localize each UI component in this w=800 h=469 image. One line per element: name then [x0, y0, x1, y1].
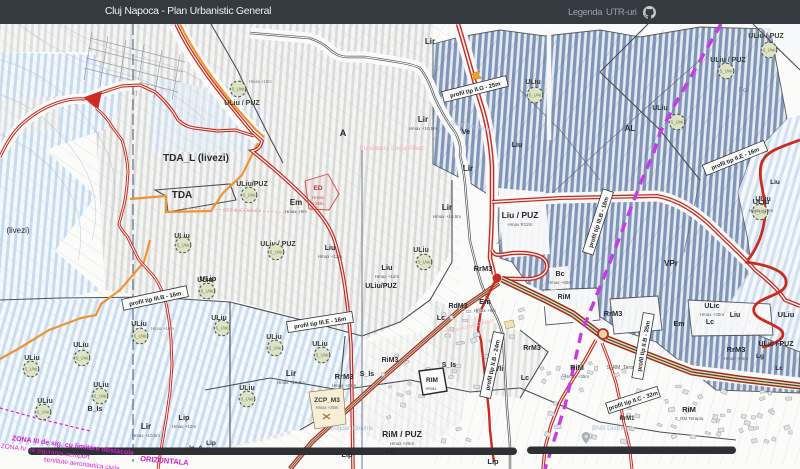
svg-text:S_UVe: S_UVe: [75, 356, 89, 361]
svg-text:RrM3: RrM3: [523, 345, 541, 352]
svg-text:ULiu: ULiu: [652, 105, 668, 112]
svg-text:S_UVe: S_UVe: [36, 410, 50, 415]
svg-text:Bc: Bc: [556, 271, 565, 278]
svg-text:B_Is: B_Is: [88, 406, 103, 413]
svg-text:RrM1: RrM1: [619, 416, 635, 422]
svg-text:ULiu: ULiu: [753, 197, 770, 206]
svg-text:TDA_L (livezi): TDA_L (livezi): [163, 153, 229, 164]
svg-text:Lir: Lir: [141, 422, 151, 431]
svg-text:S_UVe: S_UVe: [762, 48, 776, 53]
svg-text:ULiu/PUZ: ULiu/PUZ: [365, 283, 397, 290]
svg-text:S_UVe: S_UVe: [268, 346, 282, 351]
svg-text:ULiu: ULiu: [131, 321, 147, 328]
svg-text:RIM: RIM: [426, 377, 438, 384]
svg-text:S_UVe: S_UVe: [176, 243, 190, 248]
svg-text:Hmax R12m: Hmax R12m: [507, 222, 532, 227]
svg-text:Hmax +25m: Hmax +25m: [700, 312, 725, 317]
svg-text:Hmax +25m: Hmax +25m: [390, 441, 415, 446]
svg-text:S_UVe: S_UVe: [242, 193, 256, 198]
svg-text:RiM / PUZ: RiM / PUZ: [382, 429, 422, 439]
svg-text:S_UVe: S_UVe: [231, 87, 245, 92]
svg-text:Lip: Lip: [178, 413, 190, 422]
svg-text:RrM3: RrM3: [727, 345, 746, 354]
svg-text:+25m: +25m: [312, 201, 324, 206]
svg-text:S_UVe: S_UVe: [528, 93, 542, 98]
svg-text:ULiu: ULiu: [778, 310, 795, 319]
svg-text:RiM: RiM: [570, 363, 584, 372]
svg-text:ZCP_M3: ZCP_M3: [314, 397, 340, 404]
svg-text:Hmax +12m: Hmax +12m: [375, 274, 400, 279]
svg-text:Hmax +25m: Hmax +25m: [565, 374, 590, 379]
svg-text:ULiu / PUZ: ULiu / PUZ: [224, 100, 260, 107]
svg-text:Hmax +10,5m: Hmax +10,5m: [433, 214, 461, 219]
svg-text:S_UVe: S_UVe: [93, 394, 107, 399]
svg-text:S_UVe: S_UVe: [719, 69, 733, 74]
svg-text:Lg: Lg: [756, 353, 764, 360]
svg-text:Lir: Lir: [425, 37, 435, 46]
svg-text:Hmax +25m: Hmax +25m: [332, 383, 357, 388]
svg-text:Lir: Lir: [418, 115, 428, 124]
svg-text:Em: Em: [290, 198, 302, 207]
svg-text:A: A: [340, 128, 347, 138]
svg-text:Hmax +25m: Hmax +25m: [316, 405, 339, 410]
svg-text:Hmax +10m: Hmax +10m: [749, 208, 774, 213]
svg-text:Hmax +12m: Hmax +12m: [172, 424, 197, 429]
svg-text:ULiu: ULiu: [73, 342, 89, 349]
svg-text:S_UVe: S_UVe: [215, 326, 229, 331]
svg-text:ED: ED: [313, 185, 322, 192]
svg-text:S_Is: S_Is: [442, 362, 457, 369]
svg-text:Is_A: Is_A: [189, 445, 203, 452]
svg-text:RiM3: RiM3: [382, 357, 399, 364]
svg-text:ULiu: ULiu: [413, 247, 429, 254]
svg-text:Liu: Liu: [730, 312, 741, 319]
svg-text:TDA: TDA: [172, 190, 193, 201]
svg-text:ULiu: ULiu: [525, 79, 541, 86]
svg-text:Lip: Lip: [487, 457, 499, 466]
svg-text:Hmax: Hmax: [426, 386, 438, 391]
svg-text:ULiu: ULiu: [266, 334, 282, 341]
svg-text:Hmax +10,5m: Hmax +10,5m: [132, 433, 160, 438]
svg-text:Liu / PUZ: Liu / PUZ: [502, 210, 539, 220]
svg-text:Lip: Lip: [386, 449, 395, 455]
svg-text:S_UVe: S_UVe: [200, 289, 214, 294]
svg-text:Liu: Liu: [325, 245, 336, 252]
svg-text:Lip: Lip: [206, 440, 216, 447]
svg-text:Hmax +65m: Hmax +65m: [548, 280, 573, 285]
svg-text:Lir: Lir: [286, 369, 296, 378]
svg-text:S_UVe: S_UVe: [670, 120, 684, 125]
svg-text:ULiu / PUZ: ULiu / PUZ: [748, 33, 784, 40]
svg-text:Hmax +10m: Hmax +10m: [249, 79, 272, 84]
svg-text:Ve: Ve: [462, 129, 470, 136]
svg-text:ULiu: ULiu: [239, 385, 255, 392]
svg-text:RrM3: RrM3: [335, 372, 354, 381]
svg-text:ULiu / PUZ: ULiu / PUZ: [710, 57, 746, 64]
svg-text:RiM: RiM: [558, 294, 571, 301]
svg-text:RrM3: RrM3: [474, 264, 493, 273]
svg-text:VPr: VPr: [664, 259, 678, 268]
svg-text:Hmax +10,5m: Hmax +10,5m: [409, 126, 437, 131]
svg-text:S_UVe: S_UVe: [315, 353, 329, 358]
svg-text:RdM3: RdM3: [448, 303, 467, 310]
svg-text:Hmax +9m: Hmax +9m: [474, 308, 496, 313]
svg-text:Lip: Lip: [341, 450, 353, 459]
svg-text:S_UVe: S_UVe: [417, 260, 431, 265]
svg-text:S_UVe: S_UVe: [133, 334, 147, 339]
svg-text:S_Is: S_Is: [360, 371, 375, 378]
svg-text:Bogdan Dimitrie: Bogdan Dimitrie: [331, 426, 374, 432]
svg-text:Fcc: Fcc: [739, 87, 750, 94]
svg-text:(livezi): (livezi): [6, 226, 29, 235]
svg-text:S_RM Terapia: S_RM Terapia: [675, 416, 704, 421]
svg-text:Liu: Liu: [381, 263, 393, 272]
svg-text:Hmax +12m: Hmax +12m: [318, 254, 343, 259]
svg-text:Hmax +10,5m: Hmax +10,5m: [277, 380, 305, 385]
svg-text:Liu: Liu: [512, 142, 523, 149]
svg-text:BNB Districtul: BNB Districtul: [592, 425, 633, 432]
svg-text:S_UVe: S_UVe: [24, 367, 38, 372]
svg-text:Lc: Lc: [521, 375, 529, 382]
svg-text:ULiu/PUZ: ULiu/PUZ: [236, 181, 268, 188]
svg-text:Lir: Lir: [442, 203, 452, 212]
svg-text:ZCP As2 Oasului: ZCP As2 Oasului: [223, 208, 261, 214]
svg-text:ULip: ULip: [200, 274, 217, 283]
svg-text:Lir: Lir: [463, 164, 473, 173]
svg-text:Hmax: Hmax: [312, 195, 325, 200]
svg-text:Em: Em: [479, 297, 491, 306]
svg-text:Liu: Liu: [770, 179, 780, 186]
svg-text:S_UVe: S_UVe: [269, 250, 283, 255]
svg-text:RiM: RiM: [682, 405, 696, 414]
svg-text:AL: AL: [625, 124, 636, 133]
svg-text:ULic: ULic: [704, 303, 719, 310]
svg-text:Hmax +9m: Hmax +9m: [285, 209, 307, 214]
svg-text:RrM3: RrM3: [604, 309, 623, 318]
svg-text:Fundatura Lucia Albac: Fundatura Lucia Albac: [360, 145, 425, 152]
svg-text:Hmax +25m: Hmax +25m: [724, 356, 749, 361]
svg-text:Lc: Lc: [706, 319, 714, 326]
svg-text:Lc: Lc: [437, 315, 445, 322]
svg-text:Lc: Lc: [775, 365, 783, 372]
svg-text:ULic / PUZ: ULic / PUZ: [758, 341, 794, 348]
svg-text:Em: Em: [674, 321, 685, 328]
svg-text:S_UVe: S_UVe: [240, 397, 254, 402]
svg-text:Hmax +10m: Hmax +10m: [151, 326, 174, 331]
